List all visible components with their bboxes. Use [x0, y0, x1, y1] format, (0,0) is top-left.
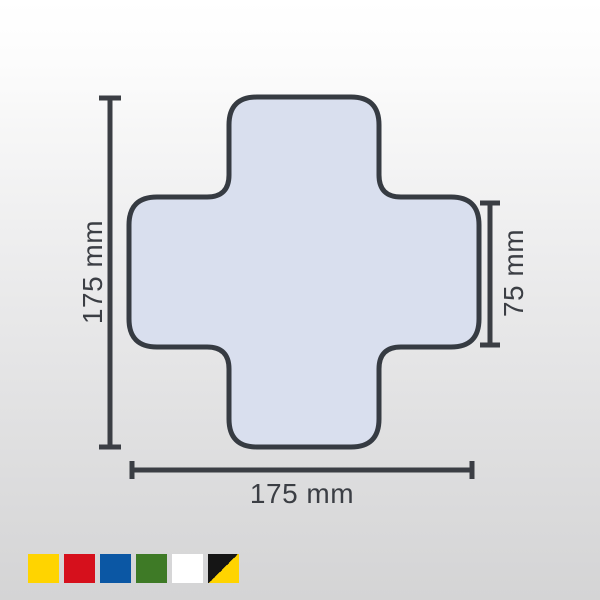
color-swatch-yellow: [28, 554, 59, 583]
color-swatch-blue: [100, 554, 131, 583]
height-dimension-label: 175 mm: [77, 220, 108, 324]
product-image: 175 mm 75 mm 175 mm: [0, 0, 600, 600]
cross-shape: [129, 97, 479, 447]
color-swatch-black-yellow: [208, 554, 239, 583]
color-swatch-green: [136, 554, 167, 583]
color-swatch-strip: [28, 554, 239, 583]
width-dimension-label: 175 mm: [250, 478, 354, 509]
arm-dimension-label: 75 mm: [498, 229, 529, 317]
dimension-diagram: 175 mm 75 mm 175 mm: [0, 0, 600, 600]
width-dimension: [132, 461, 472, 479]
color-swatch-white: [172, 554, 203, 583]
color-swatch-red: [64, 554, 95, 583]
